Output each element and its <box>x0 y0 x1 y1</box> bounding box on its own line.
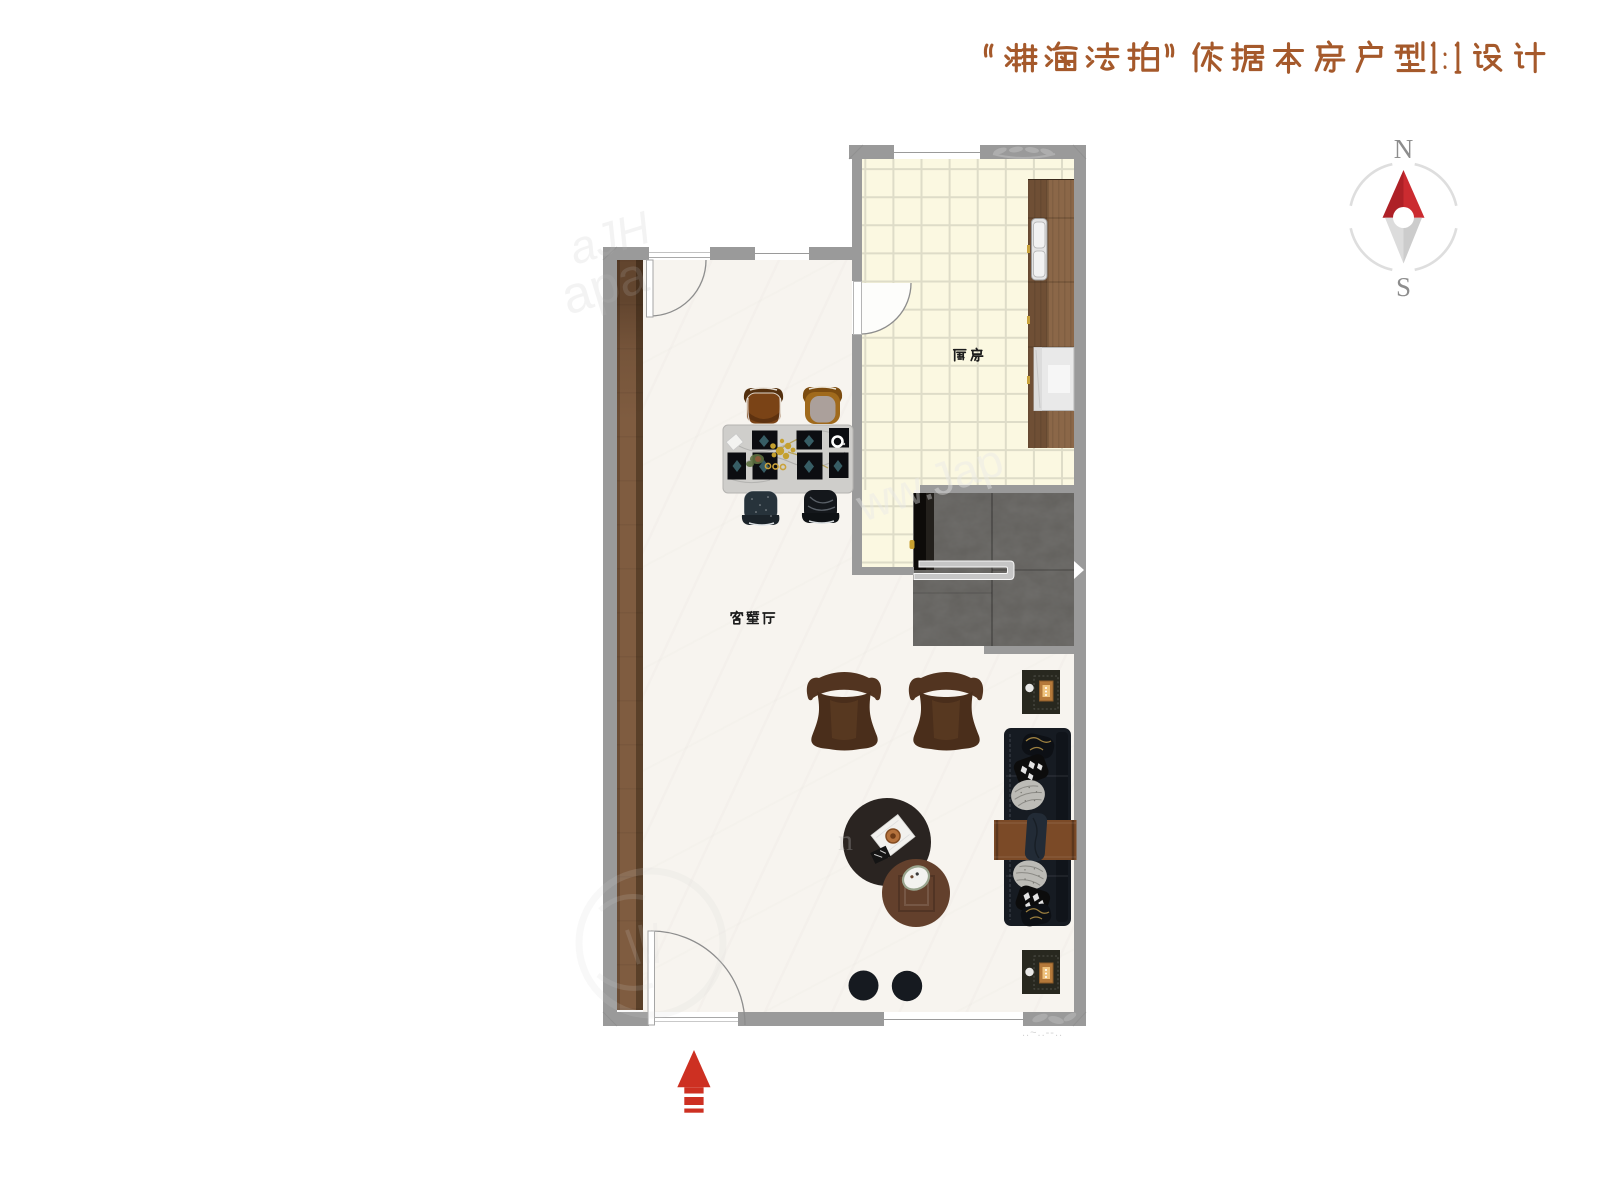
svg-text:apa: apa <box>555 246 655 327</box>
svg-text:n: n <box>838 824 853 857</box>
svg-text:S: S <box>1396 272 1411 302</box>
svg-text:N: N <box>1394 134 1414 164</box>
svg-text:ww.Jap: ww.Jap <box>849 433 1010 532</box>
svg-text:..~..--..: ..~..--.. <box>1022 1027 1063 1039</box>
